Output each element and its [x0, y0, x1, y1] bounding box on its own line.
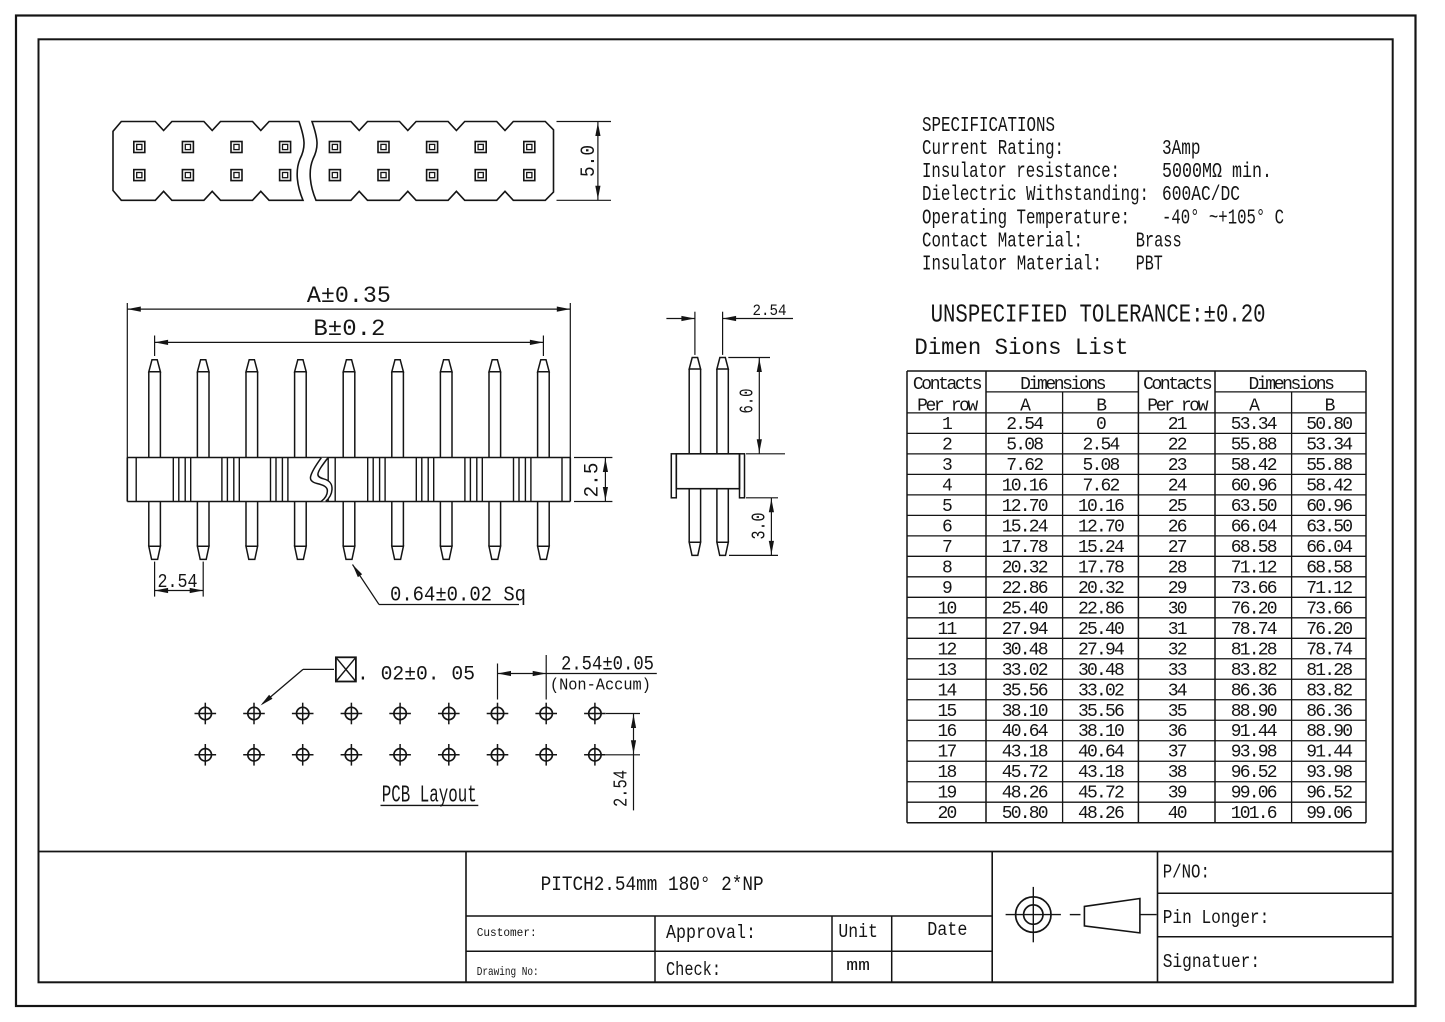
svg-text:Per row: Per row [1147, 397, 1208, 417]
svg-text:15.24: 15.24 [1078, 538, 1124, 558]
svg-text:14: 14 [937, 681, 956, 701]
svg-text:2.54: 2.54 [158, 571, 198, 593]
svg-text:17.78: 17.78 [1002, 538, 1048, 558]
svg-text:53.34: 53.34 [1306, 435, 1352, 455]
svg-text:71.12: 71.12 [1231, 558, 1277, 578]
svg-text:Dimensions: Dimensions [1248, 375, 1334, 395]
svg-text:11: 11 [937, 620, 956, 640]
svg-text:68.58: 68.58 [1231, 538, 1277, 558]
svg-text:Date: Date [927, 919, 967, 941]
svg-text:(Non-Accum): (Non-Accum) [550, 676, 651, 695]
svg-text:43.18: 43.18 [1078, 763, 1124, 783]
svg-text:2.5: 2.5 [582, 463, 605, 498]
svg-text:Brass: Brass [1136, 230, 1182, 253]
svg-text:16: 16 [937, 722, 956, 742]
svg-text:73.66: 73.66 [1231, 579, 1277, 599]
svg-text:2.54: 2.54 [611, 770, 633, 807]
svg-text:40.64: 40.64 [1078, 743, 1124, 763]
svg-text:78.74: 78.74 [1306, 640, 1352, 660]
svg-text:Contacts: Contacts [913, 375, 982, 395]
svg-text:93.98: 93.98 [1231, 743, 1277, 763]
svg-text:53.34: 53.34 [1231, 415, 1277, 435]
svg-text:4: 4 [942, 476, 952, 496]
svg-text:29: 29 [1168, 579, 1187, 599]
svg-text:50.80: 50.80 [1002, 804, 1048, 824]
svg-text:76.20: 76.20 [1231, 599, 1277, 619]
svg-text:96.52: 96.52 [1306, 784, 1352, 804]
svg-text:Per row: Per row [917, 397, 978, 417]
svg-text:25: 25 [1168, 497, 1187, 517]
svg-text:26: 26 [1168, 517, 1187, 537]
svg-text:3.0: 3.0 [749, 513, 771, 540]
svg-text:73.66: 73.66 [1306, 599, 1352, 619]
svg-text:13: 13 [937, 661, 956, 681]
svg-text:55.88: 55.88 [1231, 435, 1277, 455]
svg-text:2.54: 2.54 [1006, 415, 1043, 435]
svg-text:2.54±0.05: 2.54±0.05 [561, 654, 654, 677]
svg-text:86.36: 86.36 [1231, 681, 1277, 701]
svg-text:25.40: 25.40 [1078, 620, 1124, 640]
svg-text:Unit: Unit [838, 921, 877, 943]
svg-text:. 02±0. 05: . 02±0. 05 [357, 664, 475, 687]
svg-text:96.52: 96.52 [1231, 763, 1277, 783]
svg-text:99.06: 99.06 [1306, 804, 1352, 824]
svg-text:8: 8 [942, 558, 952, 578]
svg-text:86.36: 86.36 [1306, 702, 1352, 722]
svg-text:35.56: 35.56 [1002, 681, 1048, 701]
svg-text:20: 20 [937, 804, 956, 824]
svg-text:33: 33 [1168, 661, 1187, 681]
svg-text:38.10: 38.10 [1078, 722, 1124, 742]
svg-text:21: 21 [1168, 415, 1187, 435]
svg-text:38.10: 38.10 [1002, 702, 1048, 722]
svg-text:9: 9 [942, 579, 952, 599]
svg-text:66.04: 66.04 [1306, 538, 1352, 558]
svg-text:18: 18 [937, 763, 956, 783]
svg-text:81.28: 81.28 [1231, 640, 1277, 660]
svg-text:Check:: Check: [666, 959, 721, 981]
svg-text:7.62: 7.62 [1006, 456, 1043, 476]
svg-text:27: 27 [1168, 538, 1187, 558]
svg-text:60.96: 60.96 [1306, 497, 1352, 517]
svg-text:35.56: 35.56 [1078, 702, 1124, 722]
svg-text:12: 12 [937, 640, 956, 660]
svg-text:3Amp: 3Amp [1162, 138, 1201, 161]
svg-text:Current Rating:: Current Rating: [922, 138, 1064, 161]
svg-text:27.94: 27.94 [1078, 640, 1124, 660]
svg-text:15: 15 [937, 702, 956, 722]
svg-text:36: 36 [1168, 722, 1187, 742]
svg-text:1: 1 [942, 415, 952, 435]
svg-text:PBT: PBT [1136, 254, 1163, 277]
svg-text:-40° ~+105° C: -40° ~+105° C [1162, 207, 1284, 230]
svg-text:Dielectric Withstanding:: Dielectric Withstanding: [922, 184, 1149, 207]
svg-text:40: 40 [1168, 804, 1187, 824]
svg-text:83.82: 83.82 [1231, 661, 1277, 681]
svg-text:Insulator resistance:: Insulator resistance: [922, 161, 1120, 184]
svg-text:28: 28 [1168, 558, 1187, 578]
svg-text:88.90: 88.90 [1306, 722, 1352, 742]
svg-text:38: 38 [1168, 763, 1187, 783]
svg-text:88.90: 88.90 [1231, 702, 1277, 722]
svg-text:12.70: 12.70 [1002, 497, 1048, 517]
svg-text:Customer:: Customer: [477, 926, 537, 940]
svg-text:Contacts: Contacts [1143, 375, 1212, 395]
svg-text:17.78: 17.78 [1078, 558, 1124, 578]
svg-text:45.72: 45.72 [1002, 763, 1048, 783]
svg-text:34: 34 [1168, 681, 1187, 701]
svg-text:Drawing No:: Drawing No: [477, 965, 539, 979]
svg-text:UNSPECIFIED TOLERANCE:±0.20: UNSPECIFIED TOLERANCE:±0.20 [931, 300, 1266, 330]
svg-text:22: 22 [1168, 435, 1187, 455]
svg-text:68.58: 68.58 [1306, 558, 1352, 578]
svg-text:39: 39 [1168, 784, 1187, 804]
svg-text:76.20: 76.20 [1306, 620, 1352, 640]
svg-text:Dimen Sions List: Dimen Sions List [914, 335, 1128, 361]
svg-text:10: 10 [937, 599, 956, 619]
svg-text:63.50: 63.50 [1231, 497, 1277, 517]
svg-text:91.44: 91.44 [1231, 722, 1277, 742]
svg-text:101.6: 101.6 [1231, 804, 1277, 824]
svg-text:60.96: 60.96 [1231, 476, 1277, 496]
svg-text:10.16: 10.16 [1002, 476, 1048, 496]
svg-text:3: 3 [942, 456, 952, 476]
svg-text:SPECIFICATIONS: SPECIFICATIONS [922, 115, 1055, 138]
svg-text:Approval:: Approval: [666, 922, 756, 944]
svg-text:33.02: 33.02 [1078, 681, 1124, 701]
svg-text:66.04: 66.04 [1231, 517, 1277, 537]
svg-text:12.70: 12.70 [1078, 517, 1124, 537]
svg-text:91.44: 91.44 [1306, 743, 1352, 763]
svg-text:27.94: 27.94 [1002, 620, 1048, 640]
svg-text:45.72: 45.72 [1078, 784, 1124, 804]
svg-text:22.86: 22.86 [1002, 579, 1048, 599]
svg-text:24: 24 [1168, 476, 1187, 496]
svg-text:19: 19 [937, 784, 956, 804]
svg-text:83.82: 83.82 [1306, 681, 1352, 701]
svg-text:71.12: 71.12 [1306, 579, 1352, 599]
svg-text:30.48: 30.48 [1078, 661, 1124, 681]
svg-text:Operating Temperature:: Operating Temperature: [922, 207, 1130, 230]
svg-text:P/NO:: P/NO: [1163, 862, 1210, 884]
svg-text:40.64: 40.64 [1002, 722, 1048, 742]
svg-text:35: 35 [1168, 702, 1187, 722]
svg-text:5000MΩ min.: 5000MΩ min. [1162, 161, 1272, 184]
svg-text:33.02: 33.02 [1002, 661, 1048, 681]
svg-text:37: 37 [1168, 743, 1187, 763]
svg-text:2.54: 2.54 [1082, 435, 1119, 455]
svg-text:78.74: 78.74 [1231, 620, 1277, 640]
svg-text:93.98: 93.98 [1306, 763, 1352, 783]
svg-text:5.0: 5.0 [578, 145, 601, 177]
svg-text:Pin Longer:: Pin Longer: [1163, 907, 1270, 929]
svg-text:58.42: 58.42 [1306, 476, 1352, 496]
svg-text:23: 23 [1168, 456, 1187, 476]
svg-text:55.88: 55.88 [1306, 456, 1352, 476]
svg-text:99.06: 99.06 [1231, 784, 1277, 804]
svg-text:6: 6 [942, 517, 952, 537]
svg-text:mm: mm [846, 957, 870, 976]
svg-text:Contact Material:: Contact Material: [922, 230, 1083, 253]
svg-text:Dimensions: Dimensions [1020, 375, 1106, 395]
svg-text:B±0.2: B±0.2 [313, 316, 385, 343]
svg-text:5.08: 5.08 [1006, 435, 1043, 455]
svg-text:0.64±0.02 Sq: 0.64±0.02 Sq [390, 585, 526, 608]
svg-text:30: 30 [1168, 599, 1187, 619]
svg-text:600AC/DC: 600AC/DC [1162, 184, 1240, 207]
svg-text:20.32: 20.32 [1078, 579, 1124, 599]
svg-text:7: 7 [942, 538, 952, 558]
svg-text:25.40: 25.40 [1002, 599, 1048, 619]
svg-text:22.86: 22.86 [1078, 599, 1124, 619]
svg-text:6.0: 6.0 [737, 389, 759, 414]
svg-text:Insulator Material:: Insulator Material: [922, 254, 1102, 277]
svg-text:30.48: 30.48 [1002, 640, 1048, 660]
svg-text:0: 0 [1096, 415, 1106, 435]
svg-text:58.42: 58.42 [1231, 456, 1277, 476]
svg-text:A±0.35: A±0.35 [307, 283, 391, 310]
svg-text:63.50: 63.50 [1306, 517, 1352, 537]
svg-text:5: 5 [942, 497, 952, 517]
svg-text:PITCH2.54mm 180° 2*NP: PITCH2.54mm 180° 2*NP [541, 874, 764, 897]
svg-text:10.16: 10.16 [1078, 497, 1124, 517]
svg-text:48.26: 48.26 [1002, 784, 1048, 804]
svg-text:48.26: 48.26 [1078, 804, 1124, 824]
svg-text:5.08: 5.08 [1082, 456, 1119, 476]
svg-text:2.54: 2.54 [753, 302, 787, 320]
svg-text:31: 31 [1168, 620, 1187, 640]
svg-text:2: 2 [942, 435, 952, 455]
svg-text:7.62: 7.62 [1082, 476, 1119, 496]
svg-text:50.80: 50.80 [1306, 415, 1352, 435]
svg-text:81.28: 81.28 [1306, 661, 1352, 681]
svg-text:15.24: 15.24 [1002, 517, 1048, 537]
svg-text:20.32: 20.32 [1002, 558, 1048, 578]
svg-text:43.18: 43.18 [1002, 743, 1048, 763]
svg-text:17: 17 [937, 743, 956, 763]
svg-text:Signatuer:: Signatuer: [1163, 951, 1260, 973]
svg-text:32: 32 [1168, 640, 1187, 660]
